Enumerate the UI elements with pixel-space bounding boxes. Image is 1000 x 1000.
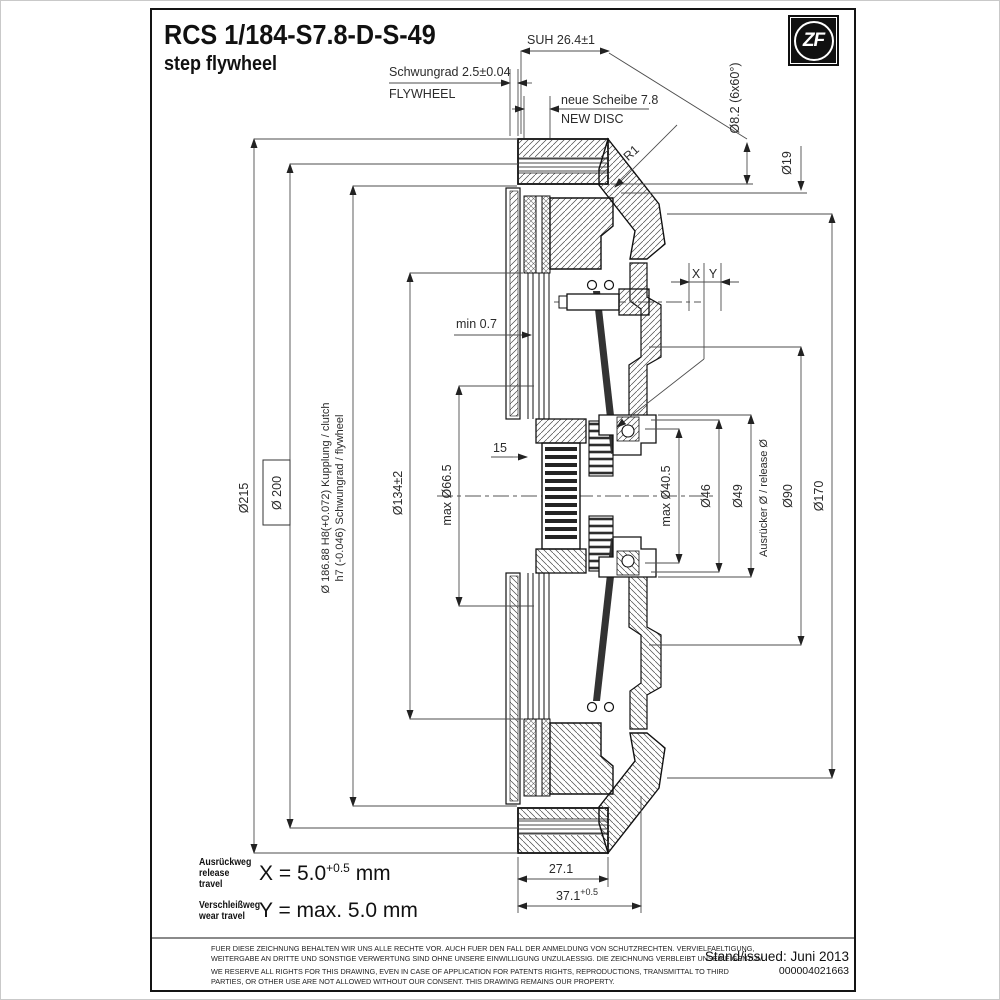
release-travel-row: Ausrückweg release travel X = 5.0+0.5 mm (199, 857, 418, 890)
label-bolt-holes: Ø8.2 (6x60°) (728, 62, 742, 133)
legal-disclaimer: FUER DIESE ZEICHNUNG BEHALTEN WIR UNS AL… (211, 944, 652, 986)
label-flywheel-en: FLYWHEEL (389, 87, 455, 101)
label-d200: Ø 200 (270, 476, 284, 510)
drawing-sheet: RCS 1/184-S7.8-D-S-49 step flywheel ZF (0, 0, 1000, 1000)
label-d66: max Ø66.5 (440, 464, 454, 525)
clutch-cross-section-drawing: SUH 26.4±1 Schwungrad 2.5±0.04 FLYWHEEL … (1, 1, 1000, 1000)
label-fit-flywheel: h7 (-0.046) Schwungrad / flywheel (334, 415, 346, 582)
legal-de-line1: FUER DIESE ZEICHNUNG BEHALTEN WIR UNS AL… (211, 944, 652, 954)
footer: Stand/issued: Juni 2013 000004021663 (601, 949, 849, 977)
label-w371: 37.1+0.5 (556, 887, 598, 903)
label-new-disc-en: NEW DISC (561, 112, 624, 126)
label-y: Y (709, 267, 718, 281)
wear-travel-value: Y = max. 5.0 mm (259, 899, 418, 923)
mounting-bolt (559, 289, 649, 315)
issued-date: Stand/issued: Juni 2013 (601, 949, 849, 964)
release-travel-value: X = 5.0+0.5 mm (259, 861, 391, 886)
label-d19: Ø19 (780, 151, 794, 175)
label-suh: SUH 26.4±1 (527, 33, 595, 47)
label-w271: 27.1 (549, 862, 573, 876)
label-d46: Ø46 (699, 484, 713, 508)
label-d40: max Ø40.5 (659, 465, 673, 526)
sheet-frame (151, 9, 855, 991)
label-d90: Ø90 (781, 484, 795, 508)
legal-en-line1: WE RESERVE ALL RIGHTS FOR THIS DRAWING, … (211, 967, 652, 977)
label-d215: Ø215 (237, 483, 251, 514)
label-x: X (692, 267, 701, 281)
label-d49: Ø49 (731, 484, 745, 508)
release-travel-label-en: release travel (199, 868, 252, 890)
travel-notes: Ausrückweg release travel X = 5.0+0.5 mm… (199, 857, 418, 932)
label-d134: Ø134±2 (391, 471, 405, 515)
label-d170: Ø170 (812, 481, 826, 512)
document-number: 000004021663 (601, 965, 849, 977)
label-release: Ausrücker Ø / release Ø (758, 439, 770, 557)
label-fit-clutch: Ø 186.88 H8(+0.072) Kupplung / clutch (320, 402, 332, 593)
label-new-disc-de: neue Scheibe 7.8 (561, 93, 658, 107)
release-travel-label-de: Ausrückweg (199, 857, 252, 868)
wear-travel-label-en: wear travel (199, 911, 252, 922)
label-flywheel-de: Schwungrad 2.5±0.04 (389, 65, 511, 79)
hub-section (542, 443, 580, 549)
label-hub-note: 15 (493, 441, 507, 455)
wear-travel-label-de: Verschleißweg (199, 900, 252, 911)
legal-en-line2: PARTIES, OR OTHER USE ARE NOT ALLOWED WI… (211, 977, 652, 987)
wear-travel-row: Verschleißweg wear travel Y = max. 5.0 m… (199, 899, 418, 923)
label-min-gap: min 0.7 (456, 317, 497, 331)
legal-de-line2: WEITERGABE AN DRITTE UND SONSTIGE VERWER… (211, 954, 652, 964)
